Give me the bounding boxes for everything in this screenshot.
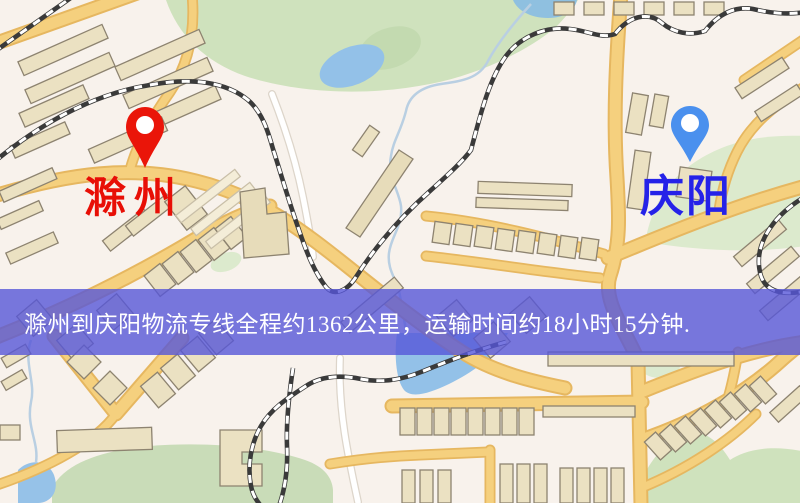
route-info-banner: 滁州到庆阳物流专线全程约1362公里，运输时间约18小时15分钟. bbox=[0, 289, 800, 355]
route-map-image: 滁州 庆阳 滁州到庆阳物流专线全程约1362公里，运输时间约18小时15分钟. bbox=[0, 0, 800, 503]
route-info-text: 滁州到庆阳物流专线全程约1362公里，运输时间约18小时15分钟. bbox=[24, 305, 690, 339]
destination-pin-hole bbox=[681, 114, 699, 132]
map-canvas bbox=[0, 0, 800, 503]
origin-city-label: 滁州 bbox=[84, 178, 184, 220]
origin-pin-icon bbox=[122, 104, 168, 172]
origin-pin-hole bbox=[136, 116, 154, 134]
destination-pin-icon bbox=[666, 103, 714, 165]
destination-city-label: 庆阳 bbox=[640, 175, 732, 219]
